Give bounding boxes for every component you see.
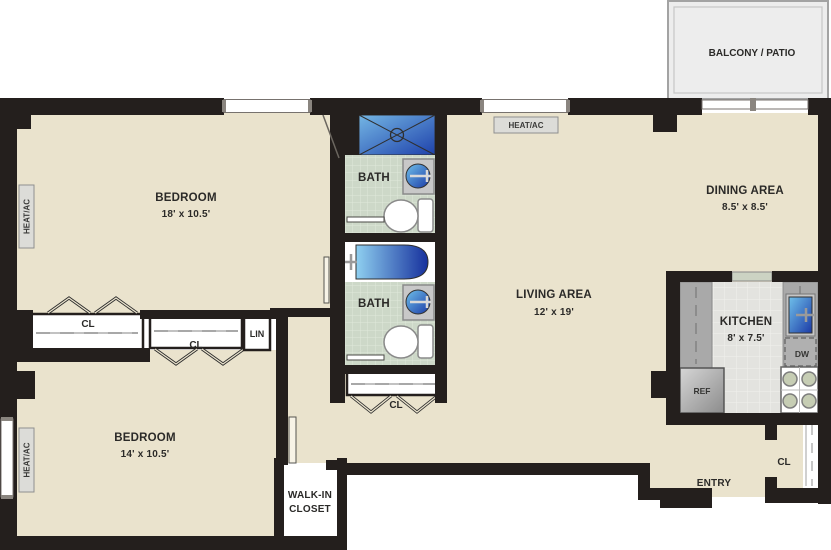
bathtub-icon xyxy=(356,245,428,279)
closet-label: CL xyxy=(81,319,94,330)
balcony: BALCONY / PATIO xyxy=(668,1,828,99)
dishwasher-label: DW xyxy=(795,349,810,359)
closet-label: CL xyxy=(389,400,402,411)
living-label: LIVING AREA xyxy=(516,289,592,301)
bath-lower: BATH xyxy=(344,242,435,365)
floor-plan-canvas: BALCONY / PATIO BATH BATH xyxy=(0,0,831,550)
entry-label: ENTRY xyxy=(697,478,732,489)
stove-icon xyxy=(781,367,818,413)
bath-lower-label: BATH xyxy=(358,298,390,310)
walk-in-line2: CLOSET xyxy=(289,504,331,515)
closet-label: CL xyxy=(777,457,790,468)
dishwasher-icon: DW xyxy=(785,338,816,366)
bedroom1-dims: 18' x 10.5' xyxy=(162,209,211,220)
kitchen-dims: 8' x 7.5' xyxy=(727,333,764,344)
heat-ac-label: HEAT/AC xyxy=(509,121,544,130)
heat-ac-label: HEAT/AC xyxy=(23,199,32,234)
living-dims: 12' x 19' xyxy=(534,307,574,318)
sink-icon xyxy=(403,285,434,320)
window-living xyxy=(482,100,568,113)
sink-icon xyxy=(403,159,434,194)
floor-plan: BALCONY / PATIO BATH BATH xyxy=(0,0,831,550)
bedroom2-dims: 14' x 10.5' xyxy=(121,449,170,460)
bath-upper-door xyxy=(347,217,384,222)
window-bedroom2 xyxy=(1,419,13,497)
linen-closet: LIN xyxy=(244,316,270,350)
heat-ac-unit: HEAT/AC xyxy=(19,428,34,492)
heat-ac-label: HEAT/AC xyxy=(23,442,32,477)
toilet-icon xyxy=(384,199,433,232)
window-bedroom1 xyxy=(224,100,310,113)
bedroom1-label: BEDROOM xyxy=(155,192,216,204)
balcony-label: BALCONY / PATIO xyxy=(709,48,796,59)
dining-label: DINING AREA xyxy=(706,185,784,197)
bath-lower-door xyxy=(347,355,384,360)
refrigerator-label: REF xyxy=(694,386,711,396)
heat-ac-unit: HEAT/AC xyxy=(19,185,34,248)
toilet-icon xyxy=(384,325,433,358)
linen-label: LIN xyxy=(250,329,265,339)
kitchen-label: KITCHEN xyxy=(720,316,773,328)
balcony-slider xyxy=(702,98,808,111)
walk-in-line1: WALK-IN xyxy=(288,490,332,501)
pass-through-sill xyxy=(732,272,772,281)
walk-in-closet: WALK-IN CLOSET xyxy=(284,463,337,536)
dining-dims: 8.5' x 8.5' xyxy=(722,202,768,213)
bedroom2-label: BEDROOM xyxy=(114,432,175,444)
bedroom2-door xyxy=(289,417,296,463)
door-leaf xyxy=(324,257,329,303)
kitchen-sink-icon xyxy=(786,294,815,336)
bath-upper-label: BATH xyxy=(358,172,390,184)
heat-ac-unit: HEAT/AC xyxy=(494,117,558,133)
kitchen: DW REF KITCHEN 8' x 7.5' xyxy=(680,272,818,413)
refrigerator-icon: REF xyxy=(680,368,724,413)
closet-label: CL xyxy=(189,340,202,351)
